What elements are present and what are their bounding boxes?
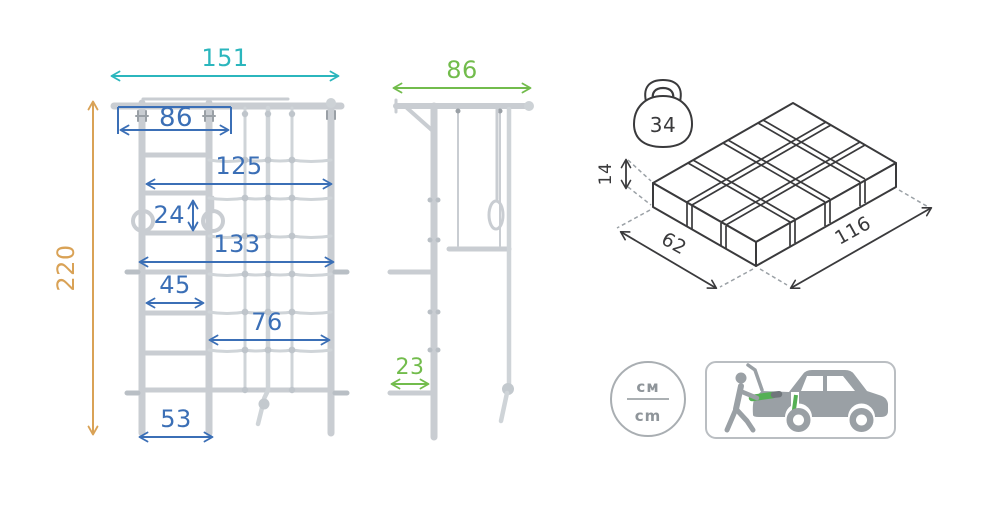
dim-label-net-span: 76 [251, 308, 283, 336]
diagonal-brace [407, 108, 434, 132]
rope-knot [259, 399, 270, 410]
dim-label-total-height: 220 [52, 244, 80, 291]
side-view-structure [390, 100, 534, 437]
trapeze-ropes [458, 109, 500, 246]
side-view: 86 23 [390, 56, 534, 437]
package-drawing: 34 14 62 116 [596, 80, 931, 288]
car-loading-icon [706, 362, 895, 438]
package-weight-label: 34 [650, 113, 676, 137]
dim-label-rings-size: 24 [153, 201, 185, 229]
dim-label-rung-width: 45 [159, 271, 191, 299]
trapeze-hook-icon [456, 109, 461, 114]
bar-end-knob [524, 101, 534, 111]
dim-label-package-depth: 62 [658, 228, 691, 259]
dim-label-handle-width: 86 [159, 103, 193, 133]
post-knob [326, 98, 336, 108]
dim-label-total-width: 151 [201, 44, 248, 72]
front-view-structure [114, 98, 347, 433]
kettlebell-icon: 34 [634, 80, 692, 147]
dim-label-base-width: 53 [160, 405, 192, 433]
units-top-label: см [636, 378, 659, 396]
dim-label-upper-span: 125 [215, 152, 262, 180]
rear-wheel-hub [793, 415, 804, 426]
dim-bracket-depth: 23 [392, 355, 428, 384]
diagram-canvas: 151 220 86 125 24 133 45 76 [0, 0, 1000, 507]
dim-total-height: 220 [52, 102, 93, 434]
dim-total-width: 151 [112, 44, 338, 76]
front-view: 151 220 86 125 24 133 45 76 [52, 44, 347, 437]
package-end-cap [774, 394, 779, 395]
dim-depth: 86 [394, 56, 530, 88]
dim-label-mid-span: 133 [213, 230, 260, 258]
dimensions-diagram: 151 220 86 125 24 133 45 76 [0, 0, 1000, 507]
dim-label-package-height: 14 [596, 163, 616, 186]
units-badge: см cm [611, 362, 685, 436]
dim-handle-width: 86 [118, 103, 231, 134]
front-wheel-hub [856, 415, 867, 426]
dim-label-depth: 86 [446, 56, 478, 84]
dim-package-height: 14 [596, 160, 626, 188]
dim-base-width: 53 [140, 405, 212, 437]
units-bottom-label: cm [635, 407, 662, 425]
long-rope-tail [501, 393, 507, 421]
dim-label-bracket-depth: 23 [396, 355, 425, 380]
dim-package-depth: 62 [621, 228, 716, 288]
dim-rung-width: 45 [147, 271, 203, 303]
dim-rings-size: 24 [153, 201, 193, 230]
person-head [736, 373, 747, 384]
